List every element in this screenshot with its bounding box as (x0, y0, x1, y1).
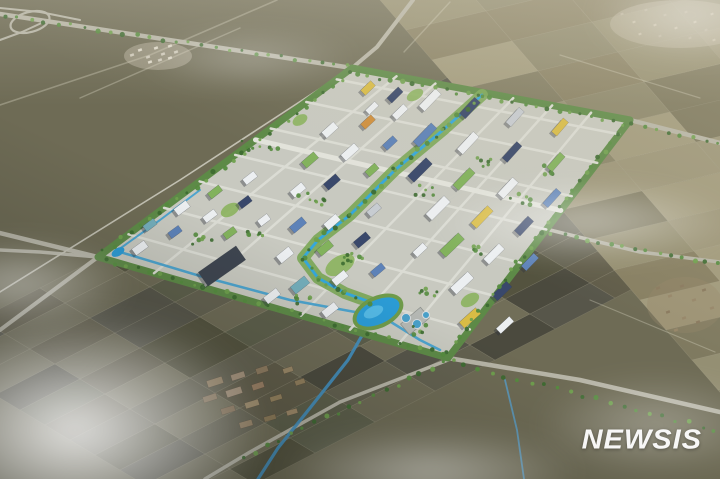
scene-graphic (0, 0, 720, 479)
newsis-watermark-logo: NEWSIS (582, 425, 702, 457)
aerial-rendering: NEWSIS (0, 0, 720, 479)
